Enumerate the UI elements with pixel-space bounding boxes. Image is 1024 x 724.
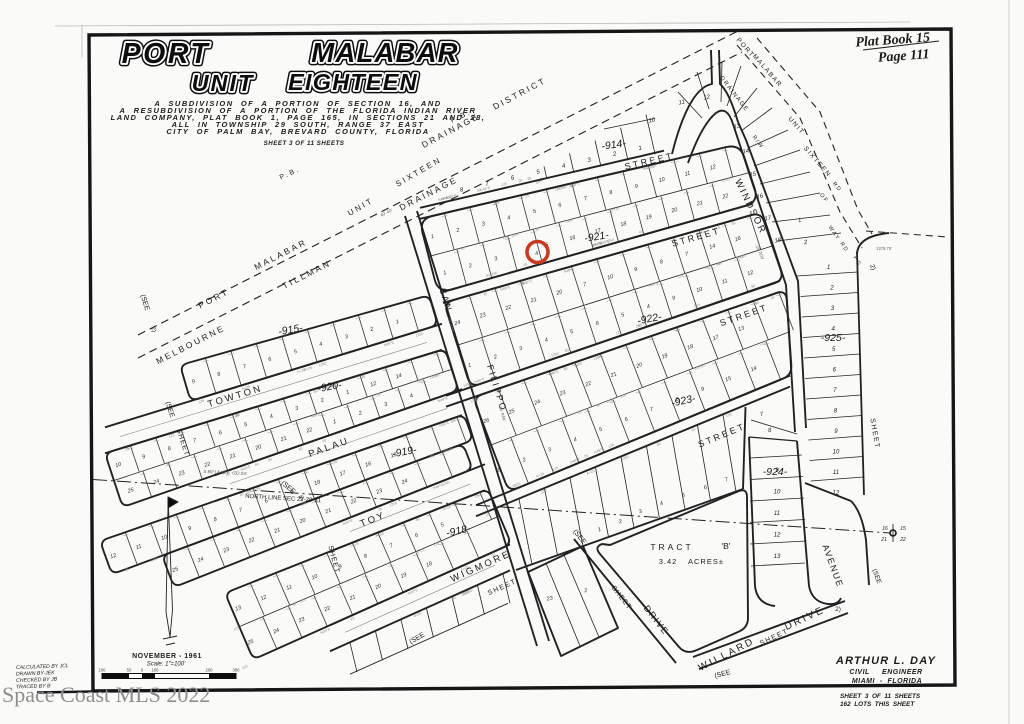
svg-text:MALABAR: MALABAR xyxy=(311,37,458,68)
svg-text:1378.75': 1378.75' xyxy=(876,246,892,251)
svg-text:15: 15 xyxy=(900,526,906,532)
svg-text:Space Coast MLS 2022: Space Coast MLS 2022 xyxy=(2,682,210,707)
svg-text:22: 22 xyxy=(899,537,906,543)
svg-text:50: 50 xyxy=(127,668,132,673)
svg-text:10: 10 xyxy=(833,450,840,456)
svg-text:MIAMI - FLORIDA: MIAMI - FLORIDA xyxy=(852,678,922,685)
svg-text:-924-: -924- xyxy=(763,466,788,478)
svg-text:200: 200 xyxy=(206,668,214,673)
svg-text:ACRES±: ACRES± xyxy=(688,557,724,566)
svg-text:12: 12 xyxy=(774,533,781,539)
svg-text:EIGHTEEN: EIGHTEEN xyxy=(288,69,418,95)
svg-text:16: 16 xyxy=(882,526,888,532)
svg-text:SHEET 3 OF 11 SHEETS: SHEET 3 OF 11 SHEETS xyxy=(264,140,345,147)
svg-text:TRACT: TRACT xyxy=(650,542,693,552)
svg-text:11: 11 xyxy=(833,470,839,476)
svg-text:2): 2) xyxy=(835,606,841,613)
svg-text:11: 11 xyxy=(774,511,780,517)
svg-text:ARTHUR L. DAY: ARTHUR L. DAY xyxy=(835,655,937,667)
svg-text:11: 11 xyxy=(678,100,685,107)
svg-text:SHEET 3 OF 11 SHEETS: SHEET 3 OF 11 SHEETS xyxy=(840,693,921,700)
svg-text:PORT: PORT xyxy=(122,38,211,70)
svg-text:'B': 'B' xyxy=(722,541,731,551)
svg-text:21: 21 xyxy=(880,537,887,543)
svg-text:3.42: 3.42 xyxy=(659,557,678,566)
svg-text:2: 2 xyxy=(829,286,834,292)
svg-text:100: 100 xyxy=(152,668,160,673)
svg-text:CIVIL ENGINEER: CIVIL ENGINEER xyxy=(849,669,922,676)
svg-text:-925-: -925- xyxy=(821,332,846,344)
svg-text:162 LOTS THIS SHEET: 162 LOTS THIS SHEET xyxy=(840,701,915,708)
svg-text:1: 1 xyxy=(827,265,830,271)
svg-text:UNIT: UNIT xyxy=(192,70,255,96)
svg-text:300: 300 xyxy=(233,668,241,673)
svg-text:CITY OF PALM BAY, BREVARD: CITY OF PALM BAY, BREVARD COUNTY, FLORID… xyxy=(166,127,429,136)
svg-text:13: 13 xyxy=(774,554,781,560)
svg-text:NOVEMBER - 1961: NOVEMBER - 1961 xyxy=(132,653,202,660)
svg-text:10: 10 xyxy=(774,490,781,496)
svg-text:100: 100 xyxy=(99,668,107,673)
